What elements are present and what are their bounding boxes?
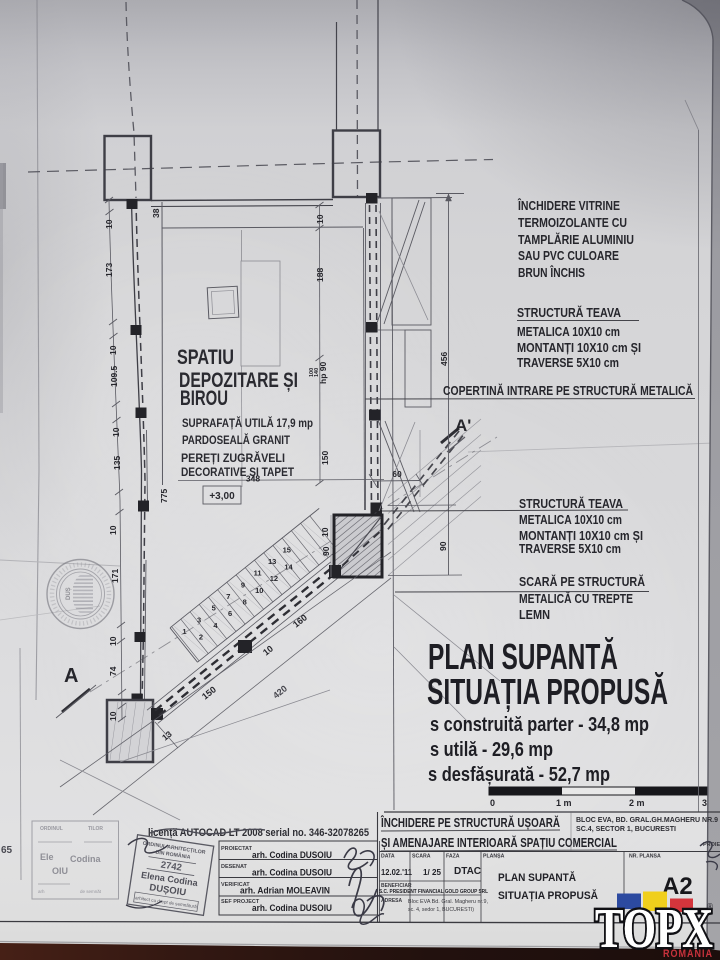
svg-text:PROIECTAT: PROIECTAT <box>221 846 253 852</box>
svg-text:188: 188 <box>315 268 325 282</box>
svg-text:DTAC: DTAC <box>454 866 481 877</box>
svg-text:SITUAȚIA PROPUSĂ: SITUAȚIA PROPUSĂ <box>427 671 668 712</box>
svg-text:DATA: DATA <box>381 854 395 860</box>
svg-text:1 m: 1 m <box>556 798 572 808</box>
svg-text:2 m: 2 m <box>629 798 645 808</box>
svg-text:173: 173 <box>104 263 114 277</box>
svg-text:arh. Codina DUSOIU: arh. Codina DUSOIU <box>252 850 332 861</box>
svg-text:135: 135 <box>112 456 122 470</box>
svg-text:2: 2 <box>199 633 203 642</box>
svg-text:LEMN: LEMN <box>519 607 550 622</box>
svg-text:10: 10 <box>111 427 121 437</box>
svg-text:8: 8 <box>243 598 247 607</box>
svg-text:Codina: Codina <box>70 854 101 864</box>
svg-text:METALICA 10X10 cm: METALICA 10X10 cm <box>517 324 620 339</box>
svg-text:0: 0 <box>490 798 495 808</box>
svg-text:MONTANȚI 10X10 cm ȘI: MONTANȚI 10X10 cm ȘI <box>517 340 641 355</box>
svg-text:STRUCTURĂ TEAVA: STRUCTURĂ TEAVA <box>517 305 622 320</box>
svg-text:ȘI AMENAJARE INTERIOARĂ SPAȚIU: ȘI AMENAJARE INTERIOARĂ SPAȚIU COMERCIAL <box>381 835 617 850</box>
svg-text:s utilă - 29,6 mp: s utilă - 29,6 mp <box>430 739 553 761</box>
svg-text:5: 5 <box>212 604 216 613</box>
svg-text:150: 150 <box>320 451 330 465</box>
svg-text:1/ 25: 1/ 25 <box>423 867 441 877</box>
svg-text:®: ® <box>707 902 713 911</box>
svg-text:10: 10 <box>108 711 118 721</box>
svg-text:90: 90 <box>438 541 448 551</box>
svg-text:hp 90: hp 90 <box>318 362 328 384</box>
svg-text:OIU: OIU <box>52 866 68 876</box>
svg-text:PARDOSEALĂ GRANIT: PARDOSEALĂ GRANIT <box>182 432 291 447</box>
svg-text:SUPRAFAȚĂ UTILĂ 17,9 mp: SUPRAFAȚĂ UTILĂ 17,9 mp <box>182 415 313 430</box>
svg-text:109.5: 109.5 <box>109 365 119 387</box>
svg-text:10: 10 <box>320 527 330 537</box>
svg-text:sc. 4, sedor 1, BUCURESTI): sc. 4, sedor 1, BUCURESTI) <box>408 907 474 913</box>
svg-text:TRAVERSE 5X10 cm: TRAVERSE 5X10 cm <box>519 541 621 556</box>
svg-text:15: 15 <box>283 545 291 554</box>
svg-text:9: 9 <box>241 580 245 589</box>
svg-text:6: 6 <box>228 609 232 618</box>
svg-text:SAU PVC CULOARE: SAU PVC CULOARE <box>518 248 619 263</box>
svg-text:74: 74 <box>108 666 118 676</box>
svg-text:775: 775 <box>159 489 169 503</box>
svg-text:Bloc EVA Bd. Gral. Magheru nr.: Bloc EVA Bd. Gral. Magheru nr.9, <box>408 899 488 905</box>
svg-text:7: 7 <box>226 592 230 601</box>
svg-text:10: 10 <box>108 525 118 535</box>
svg-text:3: 3 <box>197 615 201 624</box>
svg-text:38: 38 <box>151 208 161 218</box>
svg-text:s construită parter - 34,8 mp: s construită parter - 34,8 mp <box>430 714 649 736</box>
svg-text:SPATIU: SPATIU <box>177 346 234 369</box>
svg-text:ROMANIA: ROMANIA <box>663 948 713 960</box>
svg-text:348: 348 <box>246 474 260 484</box>
svg-text:BRUN ÎNCHIS: BRUN ÎNCHIS <box>518 265 585 280</box>
svg-text:arh. Adrian MOLEAVIN: arh. Adrian MOLEAVIN <box>240 886 330 897</box>
svg-text:+3,00: +3,00 <box>209 491 235 502</box>
svg-text:10: 10 <box>315 214 325 224</box>
svg-text:TRAVERSE 5X10 cm: TRAVERSE 5X10 cm <box>517 355 619 370</box>
svg-text:METALICĂ CU TREPTE: METALICĂ CU TREPTE <box>519 591 633 606</box>
svg-text:TERMOIZOLANTE CU: TERMOIZOLANTE CU <box>518 215 627 230</box>
svg-text:A: A <box>64 665 78 687</box>
svg-text:PEREȚI ZUGRĂVELI: PEREȚI ZUGRĂVELI <box>181 450 285 465</box>
svg-text:10: 10 <box>108 636 118 646</box>
svg-text:10: 10 <box>108 345 118 355</box>
svg-text:STRUCTURĂ TEAVA: STRUCTURĂ TEAVA <box>519 496 624 511</box>
svg-text:de semnăt: de semnăt <box>80 889 102 894</box>
svg-text:ÎNCHIDERE VITRINE: ÎNCHIDERE VITRINE <box>517 198 620 213</box>
svg-text:A': A' <box>455 416 471 435</box>
svg-text:arh. Codina DUSOIU: arh. Codina DUSOIU <box>252 903 332 914</box>
svg-text:14: 14 <box>284 562 293 571</box>
svg-text:ORDINUL: ORDINUL <box>40 826 63 832</box>
svg-text:SITUAȚIA PROPUSĂ: SITUAȚIA PROPUSĂ <box>498 889 598 902</box>
svg-text:65: 65 <box>1 845 13 856</box>
svg-text:13: 13 <box>268 557 276 566</box>
svg-text:11: 11 <box>254 569 262 578</box>
svg-text:12.02.'11: 12.02.'11 <box>381 867 412 877</box>
svg-text:456: 456 <box>439 352 449 366</box>
svg-text:SCARA: SCARA <box>412 854 431 860</box>
svg-text:METALICA 10X10 cm: METALICA 10X10 cm <box>519 512 622 527</box>
svg-text:PLANȘA: PLANȘA <box>483 854 505 860</box>
svg-text:SCARĂ PE STRUCTURĂ: SCARĂ PE STRUCTURĂ <box>519 574 646 589</box>
svg-text:DESENAT: DESENAT <box>221 864 248 870</box>
svg-text:DECORATIVE ȘI TAPET: DECORATIVE ȘI TAPET <box>181 465 295 479</box>
svg-text:10: 10 <box>255 586 263 595</box>
svg-text:Ele: Ele <box>40 852 54 862</box>
svg-text:NR. PLANSA: NR. PLANSA <box>629 854 661 860</box>
svg-text:PLAN SUPANTĂ: PLAN SUPANTĂ <box>498 871 576 884</box>
svg-text:10: 10 <box>104 219 114 229</box>
svg-text:ÎNCHIDERE PE STRUCTURĂ UȘOARĂ: ÎNCHIDERE PE STRUCTURĂ UȘOARĂ <box>380 815 560 830</box>
svg-text:SC.4, SECTOR 1, BUCURESTI: SC.4, SECTOR 1, BUCURESTI <box>576 824 676 833</box>
svg-text:90: 90 <box>321 546 331 556</box>
svg-text:BIROU: BIROU <box>180 387 228 410</box>
svg-text:TAMPLĂRIE ALUMINIU: TAMPLĂRIE ALUMINIU <box>518 232 634 247</box>
svg-text:TILOR: TILOR <box>88 826 103 832</box>
svg-text:60: 60 <box>392 469 402 479</box>
svg-text:arh. Codina DUSOIU: arh. Codina DUSOIU <box>252 868 332 879</box>
svg-text:S.C. PRESIDENT FINANCIAL GOLD: S.C. PRESIDENT FINANCIAL GOLD GROUP SRL <box>379 889 488 895</box>
svg-text:FAZA: FAZA <box>446 854 460 860</box>
svg-text:BLOC EVA, BD. GRAL.GH.MAGHERU: BLOC EVA, BD. GRAL.GH.MAGHERU NR.9 <box>576 815 718 824</box>
svg-text:COPERTINĂ INTRARE PE STRUCTURĂ: COPERTINĂ INTRARE PE STRUCTURĂ METALICĂ <box>443 383 693 398</box>
svg-text:s desfășurată - 52,7 mp: s desfășurată - 52,7 mp <box>428 764 610 786</box>
svg-text:DUȘ: DUȘ <box>66 587 72 600</box>
svg-text:arh: arh <box>38 889 45 894</box>
